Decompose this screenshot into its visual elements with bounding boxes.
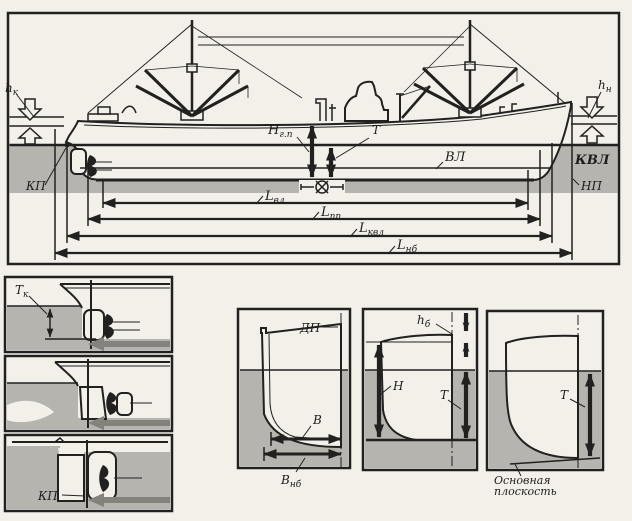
label-KVL: КВЛ	[574, 153, 610, 168]
stern-panel-2	[5, 356, 172, 431]
stern-panel-3: КП	[5, 435, 172, 511]
label-T: Т	[440, 388, 449, 402]
label-B-nb: Внб	[280, 473, 302, 490]
rudder	[117, 393, 132, 415]
label-KP: КП	[37, 489, 58, 503]
section-panel-depth: hб Н Т	[363, 309, 477, 470]
stern-panel-1: Тк	[5, 277, 172, 352]
label-T: Т	[560, 388, 569, 402]
label-KP: КП	[25, 179, 46, 193]
kp-waterline-dot	[65, 143, 70, 148]
skeg	[80, 387, 106, 419]
label-base-plane-2: плоскость	[494, 485, 557, 498]
label-B: В	[312, 413, 322, 427]
midship-symbol	[299, 180, 345, 195]
section-panel-breadth: ДП В Внб	[238, 309, 350, 490]
label-H: Н	[392, 379, 404, 393]
label-VL: ВЛ	[444, 150, 467, 165]
main-profile-diagram: Lвл Lпп Lквл Lнб Нг.п Т hк	[5, 13, 619, 264]
label-DP: ДП	[299, 321, 321, 335]
skeg	[58, 455, 84, 501]
diagram-canvas: Lвл Lпп Lквл Lнб Нг.п Т hк	[0, 0, 632, 521]
rudder	[84, 310, 104, 340]
ship-dimensions-diagram: Lвл Lпп Lквл Lнб Нг.п Т hк	[0, 0, 632, 521]
label-T: Т	[372, 123, 381, 137]
section-panel-draft: Т Основная плоскость	[487, 311, 603, 498]
label-NP: НП	[580, 179, 602, 193]
hull-half-section	[261, 324, 341, 447]
